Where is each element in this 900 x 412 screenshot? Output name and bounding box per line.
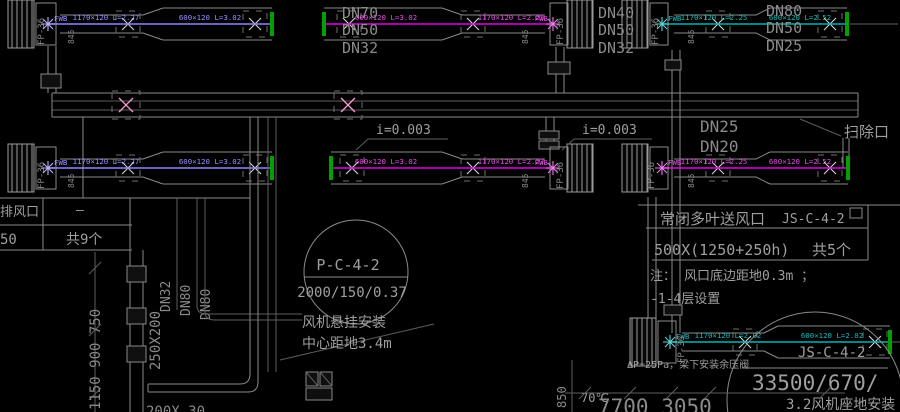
fan2-note: 3.2风机座地安装: [786, 397, 895, 412]
duct-size-label: 600×120 L=2.02: [801, 331, 863, 340]
exhaust-outlet-name: 排风口: [0, 205, 39, 220]
exhaust-outlet-dash: —: [76, 203, 84, 218]
supply-outlet-qty: 共5个: [812, 241, 851, 259]
pipe-label-dn32: DN32: [159, 281, 174, 312]
pipe-label-dn70: DN70: [342, 4, 378, 22]
dim-duct-vertical: 250X200: [148, 311, 164, 370]
unit-dim: 845: [67, 29, 76, 44]
duct-size-label: 600×120 L=3.02: [179, 157, 241, 166]
fan1-spec: 2000/150/0.37: [297, 285, 407, 301]
unit-label: FP-36: [651, 18, 661, 45]
dim-right-vertical: 850: [555, 386, 569, 408]
duct-size-label: 600×120 L=3.02: [355, 157, 417, 166]
unit-label: FP-36: [37, 18, 47, 45]
fan2-tag: JS-C-4-2: [798, 345, 865, 361]
cad-canvas: FWB FP-36 845 1170×120 L=2.27 600×120 L=…: [0, 0, 900, 412]
pipe-label-stack-top-right-left: DN40 DN50 DN32: [598, 4, 634, 57]
cleanout-label: 扫除口: [844, 123, 889, 141]
pipe-label-dn50: DN50: [766, 19, 802, 37]
unit-dim: 845: [67, 173, 76, 188]
pipe-label-dn80: DN80: [179, 285, 194, 316]
fan1-note-1: 风机悬挂安装: [302, 315, 386, 331]
pipe-label-dn80: DN80: [766, 2, 802, 20]
supply-outlet-name: 常闭多叶送风口: [660, 210, 765, 228]
pipe-label-dn32: DN32: [342, 39, 378, 57]
dim-bottom-duct: 200X 30: [146, 404, 205, 412]
pipe-label-dn50: DN50: [342, 21, 378, 39]
pipe-label-dn80: DN80: [199, 289, 214, 320]
pipe-label-stack-top-right-right: DN80 DN50 DN25: [766, 2, 802, 55]
pipe-label-dn32: DN32: [598, 39, 634, 57]
duct-end-tick: [329, 156, 333, 180]
unit-dim: 845: [687, 29, 696, 44]
duct-size-label: 1170×120 L=2.27: [73, 13, 140, 22]
fan2-spec: 33500/670/: [752, 371, 878, 395]
duct-size-label: 1170×120 L=2.27: [73, 157, 140, 166]
pipe-label-stack-top-middle: DN70 DN50 DN32: [342, 4, 378, 57]
duct-end-tick: [845, 12, 849, 36]
duct-size-label: 600×120 L=3.02: [179, 13, 241, 22]
slope-text: i=0.003: [582, 123, 637, 138]
drawing-viewport[interactable]: FWB FP-36 845 1170×120 L=2.27 600×120 L=…: [0, 0, 900, 412]
duct-size-label: 600×120 L=2.52: [769, 157, 831, 166]
exhaust-outlet-size: 50: [0, 232, 17, 248]
fan1-tag: P-C-4-2: [316, 256, 379, 274]
duct-end-tick: [846, 156, 850, 180]
unit-label: FP-36: [677, 336, 687, 363]
duct-end-tick: [270, 12, 274, 36]
pipe-label-dn20: DN20: [700, 137, 739, 156]
pipe-label-dn25: DN25: [700, 117, 739, 136]
supply-note-2: -1-4层设置: [650, 292, 720, 307]
duct-end-tick: [270, 156, 274, 180]
duct-end-tick: [888, 330, 892, 354]
dim-bottom-large: 7700 3050: [598, 395, 712, 412]
supply-outlet-size: 500X(1250+250h): [654, 241, 789, 259]
unit-dim: 845: [521, 173, 530, 188]
slope-text: i=0.003: [376, 123, 431, 138]
unit-dim: 845: [687, 173, 696, 188]
duct-size-label: 1170×120 L=2.25: [681, 157, 748, 166]
supply-outlet-model: JS-C-4-2: [782, 212, 845, 227]
duct-size-label: 1170×120 L=2.27: [478, 157, 545, 166]
pipe-label-dn25: DN25: [766, 37, 802, 55]
supply-note-prefix: 注：: [650, 269, 676, 284]
pipe-label-dn50: DN50: [598, 21, 634, 39]
supply-note-1: 风口底边距地0.3m ；: [684, 268, 814, 284]
unit-label: FP-36: [556, 162, 566, 189]
dim-left-vertical: 1150 900 750: [88, 309, 104, 410]
duct-size-label: 1170×120 L=2.25: [478, 13, 545, 22]
unit-label: FP-36: [556, 18, 566, 45]
duct-size-label: 1170×120 L=2.25: [681, 13, 748, 22]
fan1-note-2: 中心距地3.4m: [302, 336, 392, 352]
unit-tag: FWB: [54, 158, 68, 167]
pipe-label-dn40: DN40: [598, 4, 634, 22]
unit-tag: FWB: [54, 14, 68, 23]
duct-end-tick: [322, 12, 326, 36]
exhaust-outlet-qty: 共9个: [66, 232, 102, 248]
unit-label: FP-36: [37, 162, 47, 189]
unit-label: FP-36: [647, 162, 657, 189]
pressure-note: ΔP=25Pa，梁下安装余压阀: [627, 358, 749, 371]
pipe-label-stack-middle: DN25 DN20: [700, 117, 739, 156]
unit-dim: 845: [521, 29, 530, 44]
